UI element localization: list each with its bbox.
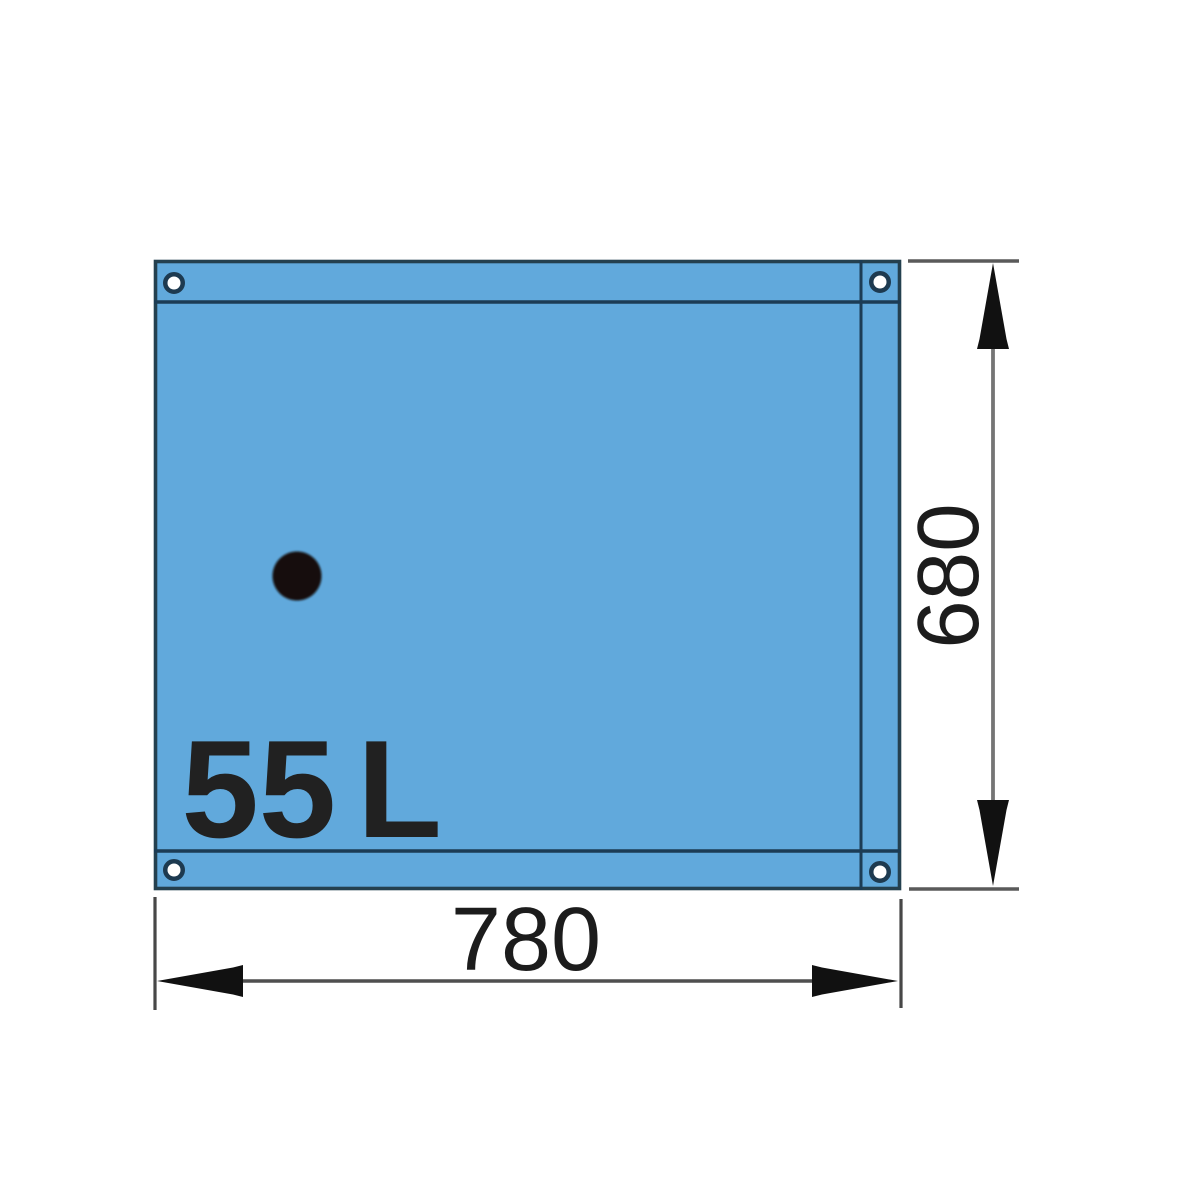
svg-text:680: 680 <box>900 503 997 648</box>
svg-text:L: L <box>357 712 442 867</box>
svg-text:780: 780 <box>451 890 601 990</box>
svg-text:55: 55 <box>182 712 337 867</box>
